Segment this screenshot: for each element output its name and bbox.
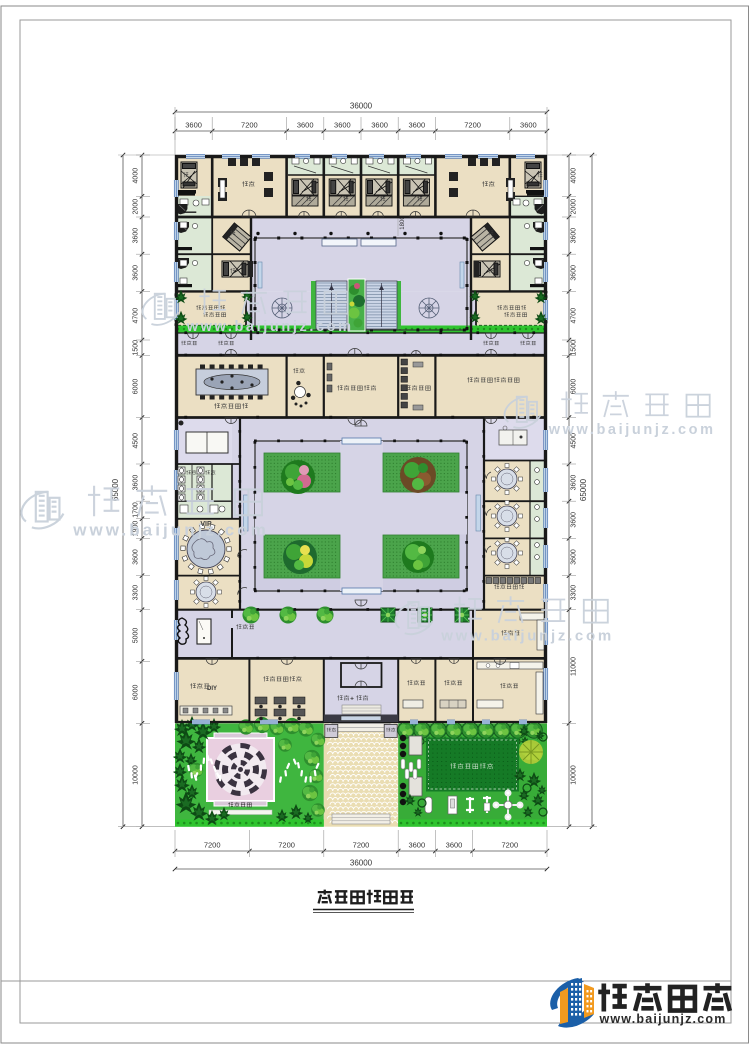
svg-text:5000: 5000 (133, 628, 140, 644)
svg-text:www.baijunjz.com: www.baijunjz.com (186, 319, 354, 335)
svg-text:3600: 3600 (446, 841, 463, 850)
svg-text:10000: 10000 (571, 765, 578, 785)
svg-text:3600: 3600 (571, 549, 578, 565)
svg-text:www.baijunjz.com: www.baijunjz.com (72, 521, 269, 540)
svg-text:7200: 7200 (278, 841, 295, 850)
svg-text:DIY: DIY (207, 686, 217, 692)
svg-text:3600: 3600 (371, 121, 388, 130)
svg-text:4700: 4700 (571, 308, 578, 324)
svg-text:4500: 4500 (133, 433, 140, 449)
svg-text:6000: 6000 (133, 379, 140, 395)
svg-text:3600: 3600 (408, 841, 425, 850)
svg-text:4000: 4000 (571, 168, 578, 184)
svg-text:36000: 36000 (350, 859, 373, 868)
svg-text:36000: 36000 (350, 102, 373, 111)
svg-text:2000: 2000 (133, 199, 140, 215)
svg-text:7200: 7200 (241, 121, 258, 130)
svg-text:+: + (350, 696, 354, 703)
svg-text:2000: 2000 (571, 199, 578, 215)
svg-text:6000: 6000 (571, 379, 578, 395)
svg-text:10000: 10000 (133, 765, 140, 785)
svg-text:3600: 3600 (571, 228, 578, 244)
svg-text:1500: 1500 (133, 340, 140, 356)
svg-text:3600: 3600 (185, 121, 202, 130)
svg-text:3600: 3600 (334, 121, 351, 130)
svg-text:3600: 3600 (133, 549, 140, 565)
svg-text:7200: 7200 (204, 841, 221, 850)
svg-text:3300: 3300 (571, 585, 578, 601)
svg-text:11000: 11000 (571, 657, 578, 676)
svg-text:7200: 7200 (501, 841, 518, 850)
svg-text:4700: 4700 (133, 308, 140, 324)
svg-text:7200: 7200 (464, 121, 481, 130)
svg-text:7200: 7200 (353, 841, 370, 850)
svg-text:3600: 3600 (571, 265, 578, 281)
svg-text:www.baijunjz.com: www.baijunjz.com (598, 1012, 726, 1026)
svg-text:3600: 3600 (133, 475, 140, 491)
svg-text:3600: 3600 (571, 512, 578, 528)
svg-text:3600: 3600 (297, 121, 314, 130)
svg-text:3600: 3600 (133, 228, 140, 244)
svg-text:3600: 3600 (520, 121, 537, 130)
svg-text:1500: 1500 (571, 340, 578, 356)
svg-text:www.baijunjz.com: www.baijunjz.com (440, 628, 614, 645)
svg-text:4000: 4000 (133, 168, 140, 184)
svg-text:6000: 6000 (133, 684, 140, 700)
svg-text:3600: 3600 (133, 265, 140, 281)
svg-text:3600: 3600 (408, 121, 425, 130)
svg-text:65000: 65000 (579, 478, 588, 501)
svg-text:www.baijunjz.com: www.baijunjz.com (548, 422, 716, 438)
svg-text:3300: 3300 (133, 585, 140, 601)
svg-text:3600: 3600 (571, 475, 578, 491)
